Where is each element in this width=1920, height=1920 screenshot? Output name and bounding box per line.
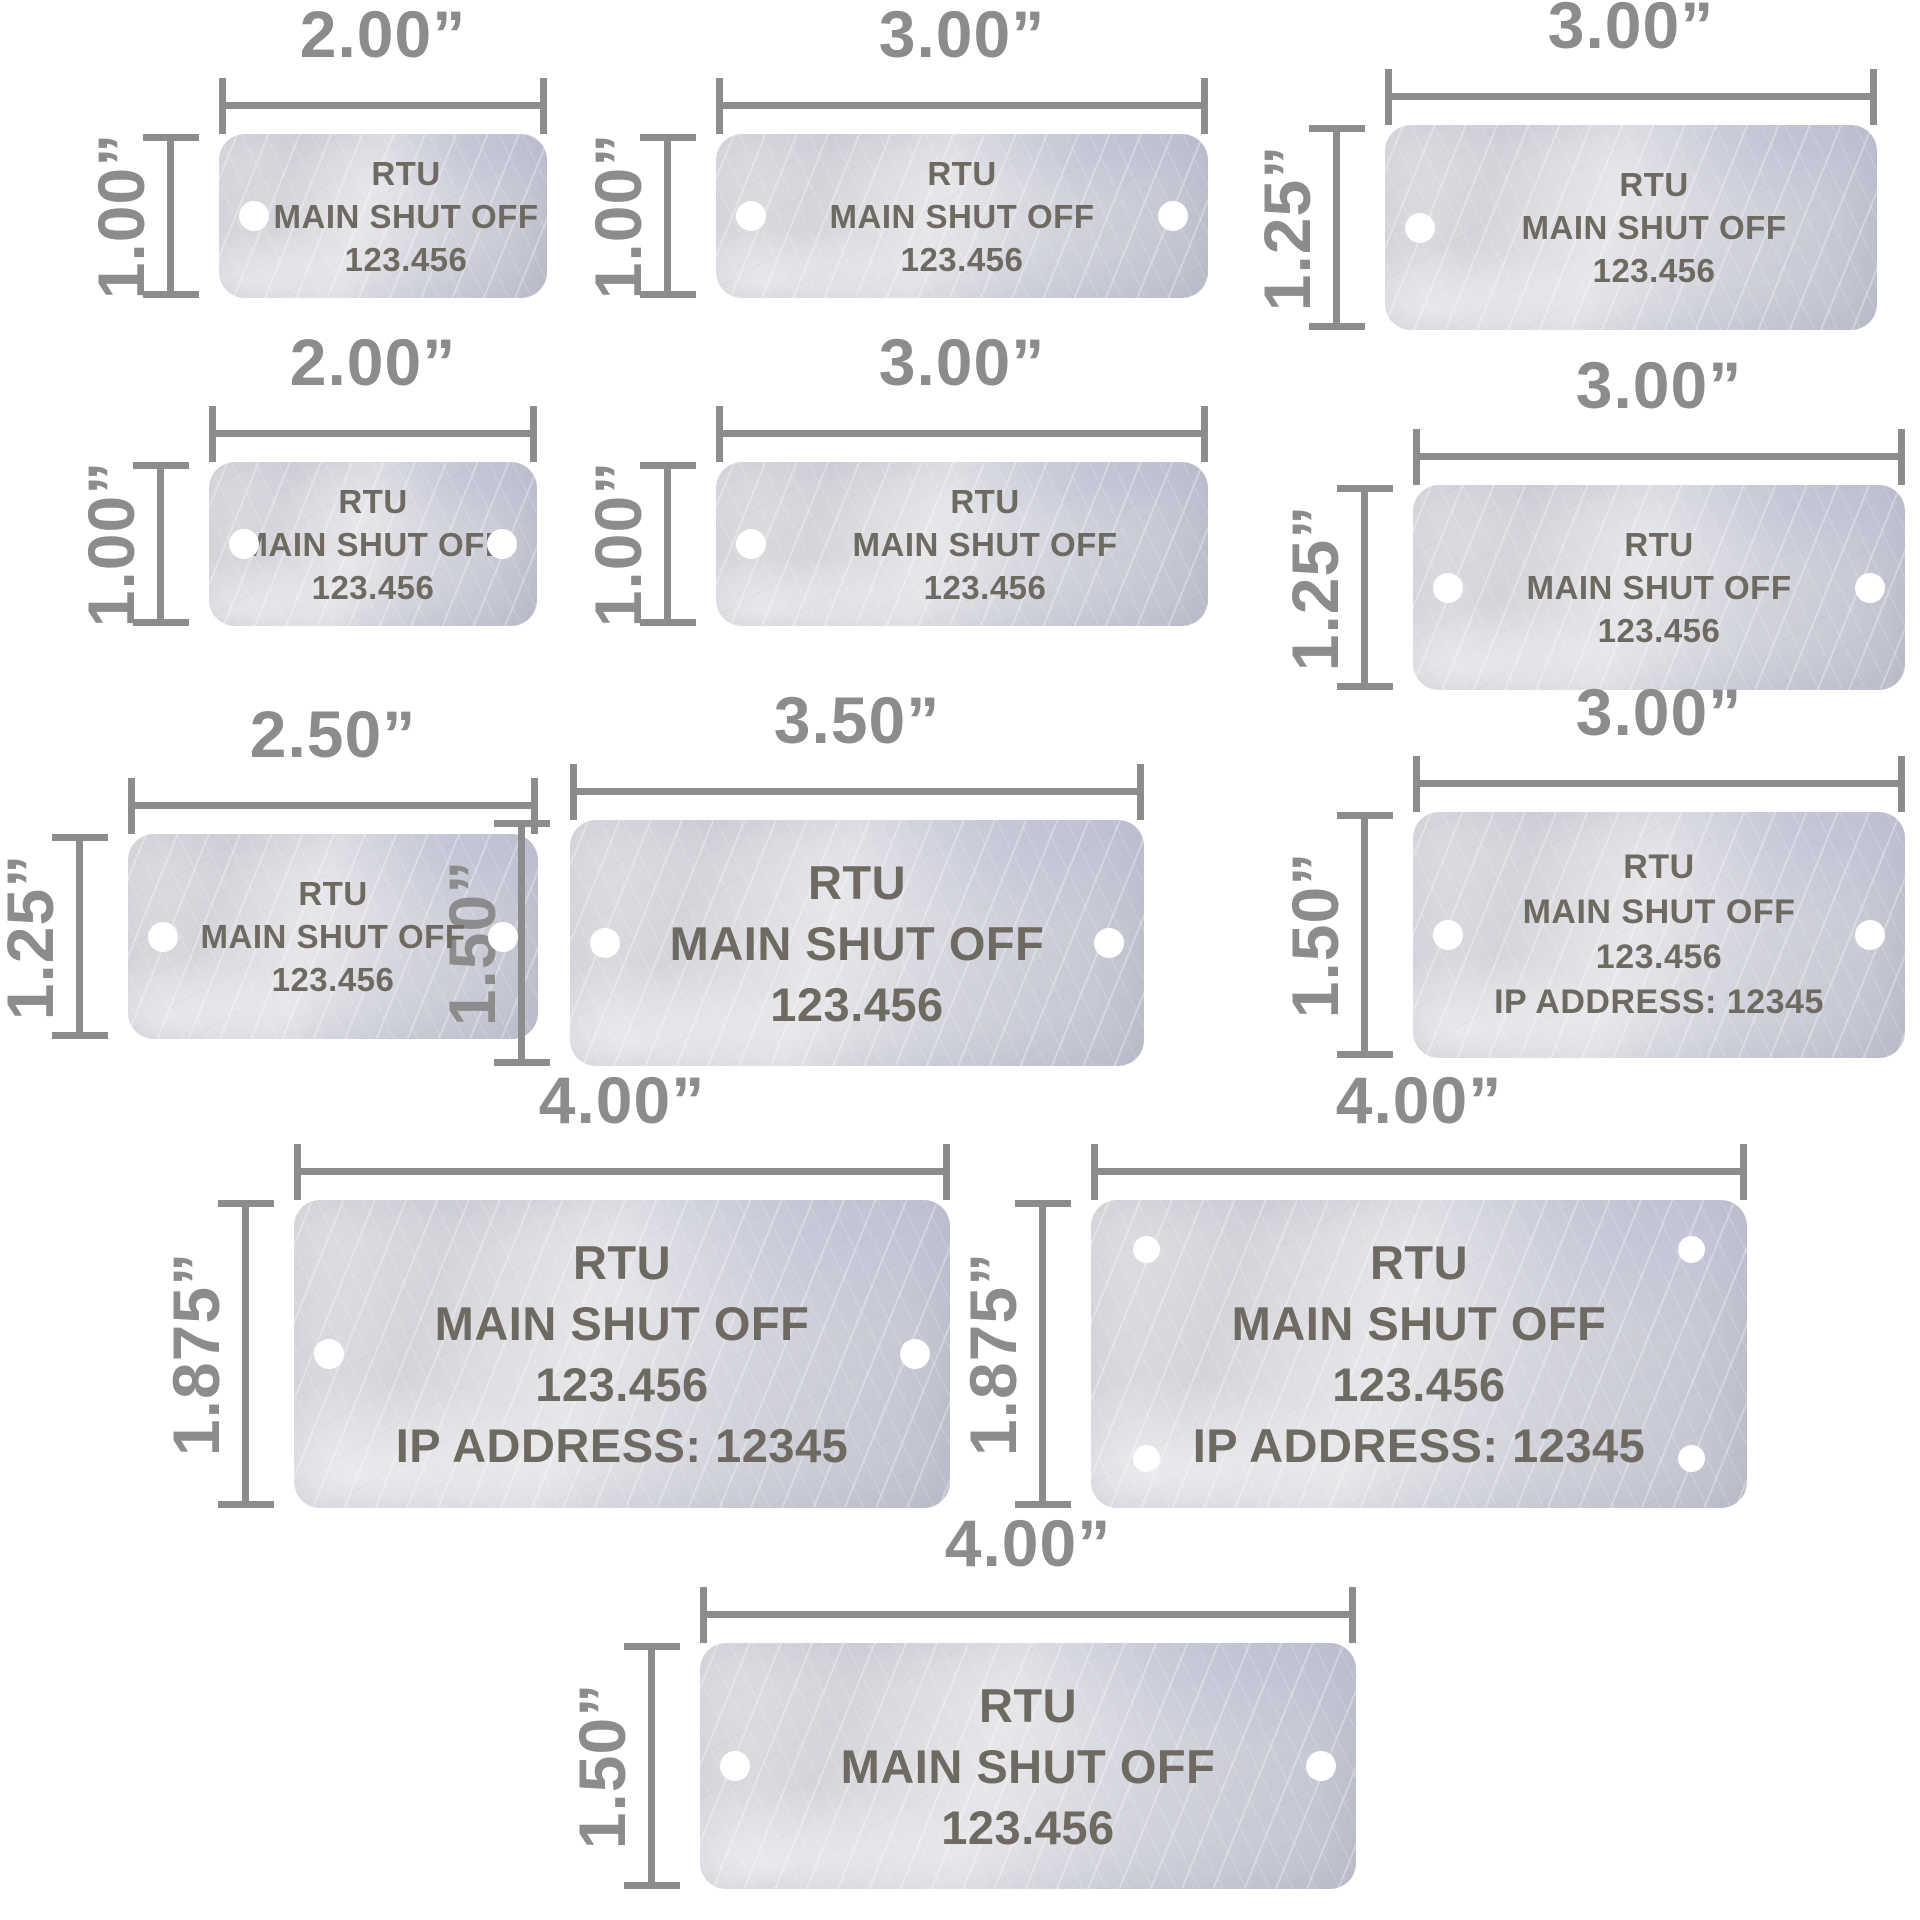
tag-line: 123.456	[274, 238, 539, 281]
height-dimension-line	[76, 834, 83, 1039]
mounting-hole	[1433, 573, 1463, 603]
width-dimension-label: 3.00”	[1413, 674, 1905, 750]
mounting-hole	[590, 928, 620, 958]
tag-line: 123.456	[241, 566, 506, 609]
mounting-hole	[1405, 213, 1435, 243]
width-dimension-line	[1385, 93, 1877, 100]
mounting-hole	[900, 1339, 930, 1369]
metal-tag: RTU MAIN SHUT OFF 123.456	[716, 134, 1208, 298]
tag-line: IP ADDRESS: 12345	[1193, 1415, 1646, 1476]
tag-line: IP ADDRESS: 12345	[396, 1415, 849, 1476]
tag-group: 2.00” 1.00” RTU MAIN SHUT OFF 123.456	[209, 462, 537, 626]
metal-tag: RTU MAIN SHUT OFF 123.456	[219, 134, 547, 298]
height-dimension-label: 1.25”	[1275, 485, 1355, 690]
tag-line: RTU	[201, 872, 466, 915]
engraved-text: RTU MAIN SHUT OFF 123.456 IP ADDRESS: 12…	[1494, 845, 1824, 1025]
mounting-hole	[148, 922, 178, 952]
height-dimension-label: 1.00”	[578, 462, 658, 626]
tag-line: RTU	[853, 480, 1118, 523]
height-dimension-line	[518, 820, 525, 1066]
tag-line: RTU	[1494, 845, 1824, 890]
tag-line: 123.456	[841, 1797, 1216, 1858]
mounting-hole	[1678, 1236, 1705, 1263]
engraved-text: RTU MAIN SHUT OFF 123.456	[830, 152, 1095, 281]
width-dimension-label: 2.00”	[209, 324, 537, 400]
tag-line: MAIN SHUT OFF	[853, 523, 1118, 566]
engraved-text: RTU MAIN SHUT OFF 123.456	[670, 852, 1045, 1035]
tag-line: MAIN SHUT OFF	[1527, 566, 1792, 609]
tag-line: MAIN SHUT OFF	[830, 195, 1095, 238]
engraved-text: RTU MAIN SHUT OFF 123.456 IP ADDRESS: 12…	[396, 1232, 849, 1476]
mounting-hole	[736, 201, 766, 231]
tag-line: MAIN SHUT OFF	[274, 195, 539, 238]
tag-group: 3.00” 1.50” RTU MAIN SHUT OFF 123.456 IP…	[1413, 812, 1905, 1058]
metal-tag: RTU MAIN SHUT OFF 123.456 IP ADDRESS: 12…	[1413, 812, 1905, 1058]
engraved-text: RTU MAIN SHUT OFF 123.456	[841, 1675, 1216, 1858]
mounting-hole	[720, 1751, 750, 1781]
width-dimension-line	[700, 1611, 1356, 1618]
metal-tag: RTU MAIN SHUT OFF 123.456 IP ADDRESS: 12…	[294, 1200, 950, 1508]
tag-line: MAIN SHUT OFF	[201, 915, 466, 958]
tag-line: 123.456	[853, 566, 1118, 609]
width-dimension-line	[570, 788, 1144, 795]
width-dimension-line	[128, 802, 538, 809]
engraved-text: RTU MAIN SHUT OFF 123.456	[1527, 523, 1792, 652]
engraved-text: RTU MAIN SHUT OFF 123.456	[807, 480, 1118, 609]
tag-group: 2.00” 1.00” RTU MAIN SHUT OFF 123.456	[219, 134, 547, 298]
mounting-hole	[239, 201, 269, 231]
mounting-hole	[1433, 920, 1463, 950]
engraved-text: RTU MAIN SHUT OFF 123.456	[241, 480, 506, 609]
tag-line: MAIN SHUT OFF	[1494, 890, 1824, 935]
tag-group: 3.00” 1.00” RTU MAIN SHUT OFF 123.456	[716, 462, 1208, 626]
mounting-hole	[1094, 928, 1124, 958]
height-dimension-label: 1.00”	[71, 462, 151, 626]
mounting-hole	[229, 529, 259, 559]
tag-line: RTU	[396, 1232, 849, 1293]
tag-line: RTU	[841, 1675, 1216, 1736]
height-dimension-line	[1361, 812, 1368, 1058]
height-dimension-label: 1.25”	[1247, 125, 1327, 330]
metal-tag: RTU MAIN SHUT OFF 123.456 IP ADDRESS: 12…	[1091, 1200, 1747, 1508]
mounting-hole	[1678, 1445, 1705, 1472]
metal-tag: RTU MAIN SHUT OFF 123.456	[570, 820, 1144, 1066]
height-dimension-label: 1.875”	[953, 1200, 1033, 1508]
tag-line: RTU	[241, 480, 506, 523]
tag-line: IP ADDRESS: 12345	[1494, 980, 1824, 1025]
width-dimension-line	[1413, 780, 1905, 787]
width-dimension-label: 4.00”	[294, 1062, 950, 1138]
tag-group: 3.50” 1.50” RTU MAIN SHUT OFF 123.456	[570, 820, 1144, 1066]
tag-line: MAIN SHUT OFF	[241, 523, 506, 566]
height-dimension-label: 1.50”	[562, 1643, 642, 1889]
tag-line: 123.456	[1527, 609, 1792, 652]
tag-line: RTU	[670, 852, 1045, 913]
height-dimension-label: 1.25”	[0, 834, 70, 1039]
width-dimension-label: 4.00”	[700, 1505, 1356, 1581]
tag-line: MAIN SHUT OFF	[670, 913, 1045, 974]
height-dimension-line	[648, 1643, 655, 1889]
tag-size-diagram: 2.00” 1.00” RTU MAIN SHUT OFF 123.456 3.…	[0, 0, 1920, 1920]
height-dimension-label: 1.50”	[1275, 812, 1355, 1058]
height-dimension-line	[1039, 1200, 1046, 1508]
tag-line: RTU	[1527, 523, 1792, 566]
tag-line: RTU	[830, 152, 1095, 195]
height-dimension-line	[1361, 485, 1368, 690]
mounting-hole	[1855, 573, 1885, 603]
tag-line: 123.456	[396, 1354, 849, 1415]
mounting-hole	[1133, 1445, 1160, 1472]
tag-group: 4.00” 1.50” RTU MAIN SHUT OFF 123.456	[700, 1643, 1356, 1889]
tag-line: 123.456	[830, 238, 1095, 281]
width-dimension-label: 4.00”	[1091, 1062, 1747, 1138]
mounting-hole	[1133, 1236, 1160, 1263]
tag-line: RTU	[1522, 163, 1787, 206]
tag-line: 123.456	[670, 974, 1045, 1035]
mounting-hole	[736, 529, 766, 559]
height-dimension-line	[242, 1200, 249, 1508]
tag-group: 4.00” 1.875” RTU MAIN SHUT OFF 123.456 I…	[294, 1200, 950, 1508]
tag-line: 123.456	[1494, 935, 1824, 980]
width-dimension-line	[1413, 453, 1905, 460]
mounting-hole	[487, 529, 517, 559]
height-dimension-label: 1.00”	[578, 134, 658, 298]
metal-tag: RTU MAIN SHUT OFF 123.456	[716, 462, 1208, 626]
mounting-hole	[1855, 920, 1885, 950]
engraved-text: RTU MAIN SHUT OFF 123.456	[228, 152, 539, 281]
width-dimension-line	[1091, 1168, 1747, 1175]
tag-line: RTU	[274, 152, 539, 195]
tag-group: 3.00” 1.25” RTU MAIN SHUT OFF 123.456	[1413, 485, 1905, 690]
height-dimension-line	[167, 134, 174, 298]
height-dimension-line	[157, 462, 164, 626]
tag-line: MAIN SHUT OFF	[1522, 206, 1787, 249]
height-dimension-line	[1333, 125, 1340, 330]
width-dimension-line	[209, 430, 537, 437]
width-dimension-line	[294, 1168, 950, 1175]
height-dimension-label: 1.875”	[156, 1200, 236, 1508]
tag-group: 3.00” 1.25” RTU MAIN SHUT OFF 123.456	[1385, 125, 1877, 330]
tag-line: RTU	[1193, 1232, 1646, 1293]
width-dimension-label: 3.00”	[716, 324, 1208, 400]
mounting-hole	[488, 922, 518, 952]
height-dimension-line	[664, 134, 671, 298]
engraved-text: RTU MAIN SHUT OFF 123.456 IP ADDRESS: 12…	[1193, 1232, 1646, 1476]
engraved-text: RTU MAIN SHUT OFF 123.456	[201, 872, 466, 1001]
width-dimension-line	[219, 102, 547, 109]
mounting-hole	[1306, 1751, 1336, 1781]
metal-tag: RTU MAIN SHUT OFF 123.456	[1385, 125, 1877, 330]
height-dimension-line	[664, 462, 671, 626]
height-dimension-label: 1.00”	[81, 134, 161, 298]
width-dimension-label: 3.00”	[1413, 347, 1905, 423]
metal-tag: RTU MAIN SHUT OFF 123.456	[1413, 485, 1905, 690]
mounting-hole	[1158, 201, 1188, 231]
metal-tag: RTU MAIN SHUT OFF 123.456	[700, 1643, 1356, 1889]
width-dimension-label: 2.00”	[219, 0, 547, 72]
width-dimension-label: 2.50”	[128, 696, 538, 772]
width-dimension-line	[716, 430, 1208, 437]
width-dimension-label: 3.00”	[1385, 0, 1877, 63]
metal-tag: RTU MAIN SHUT OFF 123.456	[209, 462, 537, 626]
mounting-hole	[314, 1339, 344, 1369]
tag-line: MAIN SHUT OFF	[1193, 1293, 1646, 1354]
width-dimension-label: 3.00”	[716, 0, 1208, 72]
tag-line: MAIN SHUT OFF	[396, 1293, 849, 1354]
tag-group: 3.00” 1.00” RTU MAIN SHUT OFF 123.456	[716, 134, 1208, 298]
tag-line: MAIN SHUT OFF	[841, 1736, 1216, 1797]
width-dimension-label: 3.50”	[570, 682, 1144, 758]
tag-line: 123.456	[1193, 1354, 1646, 1415]
tag-group: 4.00” 1.875” RTU MAIN SHUT OFF 123.456 I…	[1091, 1200, 1747, 1508]
engraved-text: RTU MAIN SHUT OFF 123.456	[1476, 163, 1787, 292]
width-dimension-line	[716, 102, 1208, 109]
tag-line: 123.456	[201, 958, 466, 1001]
tag-line: 123.456	[1522, 249, 1787, 292]
